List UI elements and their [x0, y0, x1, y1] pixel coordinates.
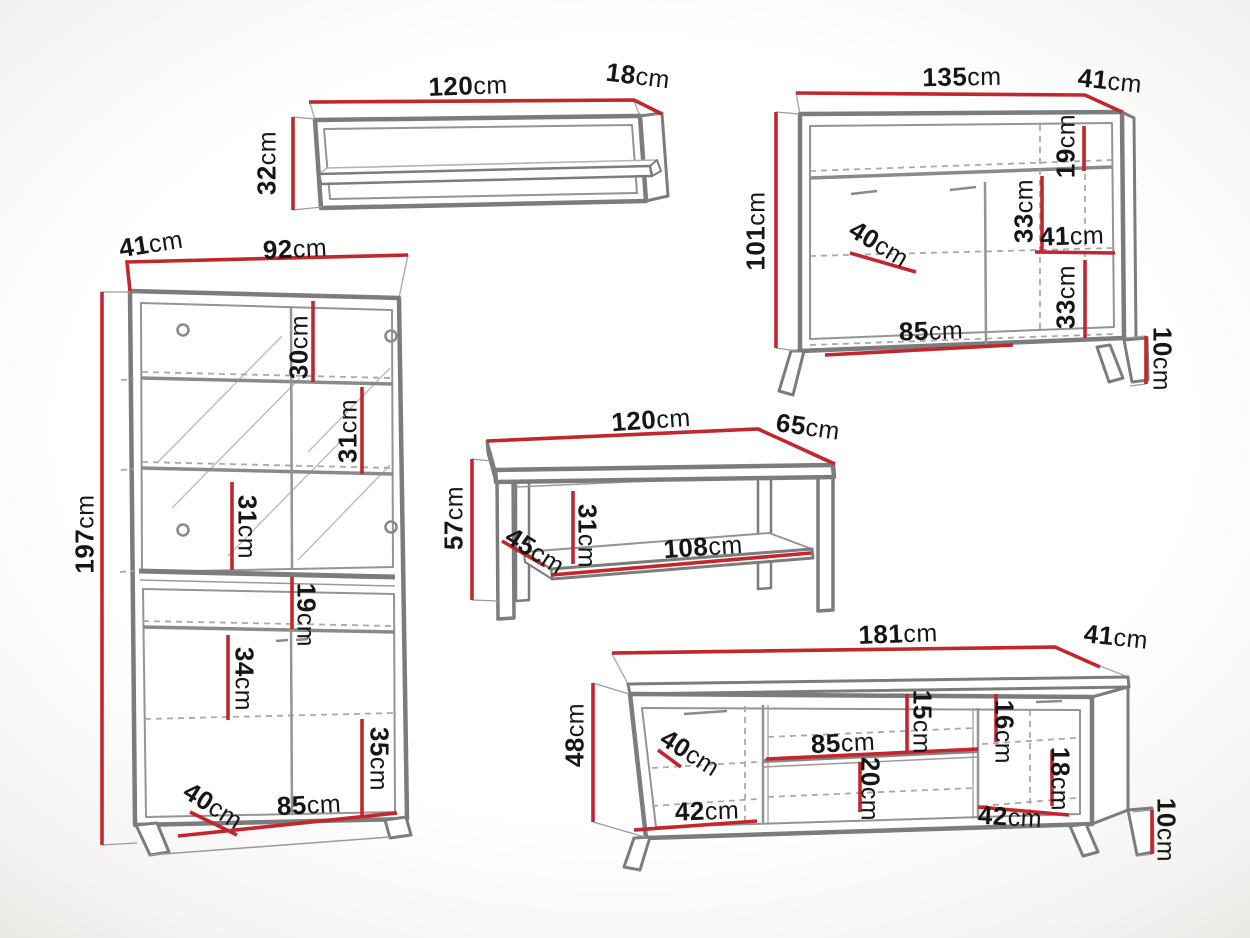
dim-sideboard-upper-shelf-gap: 33cm: [1011, 179, 1038, 243]
dim-cabinet-height: 197cm: [72, 494, 99, 573]
dim-tv-stand-width: 181cm: [858, 619, 938, 649]
dim-cabinet-lower-shelf: 34cm: [231, 647, 258, 711]
dim-cabinet-width: 92cm: [262, 234, 328, 264]
dim-tv-stand-right-door-width: 42cm: [977, 802, 1043, 832]
dim-cabinet-lower-bottom: 35cm: [366, 727, 393, 791]
coffee-table-drawing: [472, 429, 835, 619]
dim-tv-stand-middle-width: 85cm: [810, 728, 876, 758]
dim-sideboard-doors-width: 85cm: [898, 316, 963, 345]
dim-sideboard-right-section-width: 41cm: [1039, 221, 1104, 250]
dim-sideboard-width: 135cm: [922, 63, 1002, 91]
dim-cabinet-glass-shelf-3: 31cm: [234, 495, 261, 559]
dim-tv-stand-leg-height: 10cm: [1153, 798, 1180, 862]
dim-tv-stand-middle-gap: 20cm: [857, 757, 884, 821]
dim-cabinet-niche: 19cm: [293, 583, 320, 647]
dim-tv-stand-left-door-width: 42cm: [674, 796, 739, 825]
dim-sideboard-top-gap: 19cm: [1053, 114, 1080, 178]
dim-tv-stand-height: 48cm: [562, 703, 589, 767]
dim-tv-stand-right-gap-lower: 18cm: [1047, 747, 1074, 811]
dim-sideboard-lower-shelf-gap: 33cm: [1053, 265, 1080, 329]
dim-tv-stand-right-gap-upper: 16cm: [991, 700, 1018, 764]
furniture-dimensions-diagram: 120cm 18cm 32cm 41cm 92cm 197cm 30cm 31c…: [0, 0, 1250, 938]
dim-coffee-table-shelf-width: 108cm: [663, 531, 744, 563]
dim-coffee-table-height: 57cm: [441, 486, 468, 550]
dim-tv-stand-depth: 41cm: [1083, 620, 1150, 654]
dim-coffee-table-inner-height: 31cm: [574, 504, 601, 568]
dim-tv-stand-top-gap: 15cm: [909, 690, 936, 754]
dim-wall-shelf-height: 32cm: [254, 131, 281, 195]
dim-coffee-table-width: 120cm: [611, 404, 692, 436]
dim-sideboard-depth: 41cm: [1077, 64, 1144, 98]
dim-cabinet-inner-width: 85cm: [276, 790, 342, 820]
dim-wall-shelf-width: 120cm: [428, 71, 508, 101]
wall-shelf-drawing: [293, 100, 668, 210]
dim-cabinet-glass-shelf-1: 30cm: [286, 315, 313, 379]
dim-cabinet-glass-shelf-2: 31cm: [335, 399, 362, 463]
dim-sideboard-height: 101cm: [743, 191, 770, 270]
dim-sideboard-leg-height: 10cm: [1149, 327, 1176, 391]
